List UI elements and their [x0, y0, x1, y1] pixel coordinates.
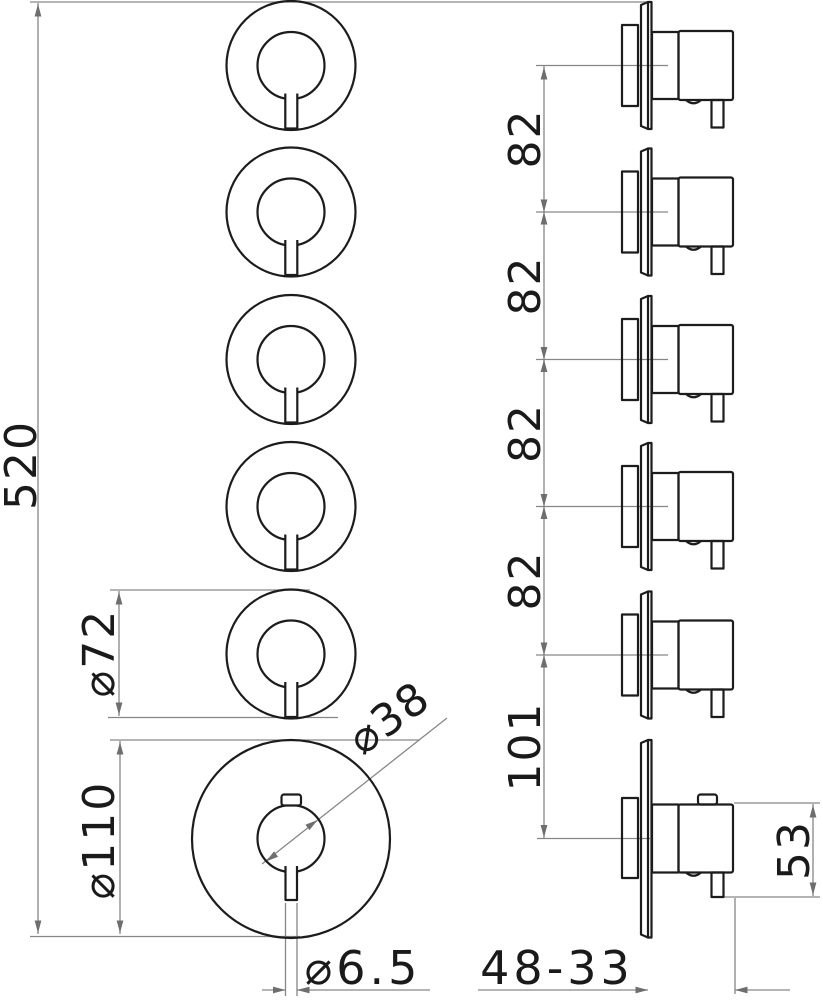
- side-handle-main: [622, 740, 733, 938]
- dimension-labels: 520 ⌀72 ⌀110 ⌀38 82 82 82 82 101 53 ⌀6.5…: [0, 109, 820, 996]
- side-handle-4: [622, 443, 733, 570]
- label-pitch-1: 82: [500, 109, 551, 169]
- mixer-dimension-drawing: 520 ⌀72 ⌀110 ⌀38 82 82 82 82 101 53 ⌀6.5…: [0, 0, 823, 1000]
- label-plate-diameter: ⌀110: [74, 781, 125, 899]
- label-pin-diameter: ⌀6.5: [305, 941, 422, 995]
- front-knob-4: [227, 442, 356, 571]
- front-knob-2: [227, 148, 356, 277]
- dimension-lines: [30, 2, 820, 996]
- label-grip-diameter: ⌀38: [339, 672, 440, 766]
- label-handle-projection: 53: [769, 820, 820, 880]
- label-pitch-4: 82: [500, 551, 551, 611]
- dim-rosette-diameter: [108, 590, 338, 718]
- front-view: [192, 1, 390, 938]
- label-pitch-3: 82: [500, 403, 551, 463]
- label-rosette-diameter: ⌀72: [74, 609, 125, 697]
- label-pitch-5: 101: [500, 702, 551, 792]
- front-main-knob: [192, 740, 390, 938]
- technical-drawing-page: 520 ⌀72 ⌀110 ⌀38 82 82 82 82 101 53 ⌀6.5…: [0, 0, 823, 1000]
- dim-plate-diameter: [110, 740, 420, 934]
- label-pitch-2: 82: [500, 256, 551, 316]
- side-handle-5: [622, 592, 733, 719]
- front-knob-1: [227, 1, 356, 130]
- front-knob-3: [227, 295, 356, 424]
- side-handle-3: [622, 296, 733, 423]
- label-projection-range: 48-33: [480, 941, 634, 995]
- side-handle-2: [622, 149, 733, 276]
- label-overall-height: 520: [0, 420, 47, 510]
- side-handle-1: [622, 2, 733, 129]
- front-knob-5: [227, 590, 356, 719]
- side-view: [622, 2, 733, 938]
